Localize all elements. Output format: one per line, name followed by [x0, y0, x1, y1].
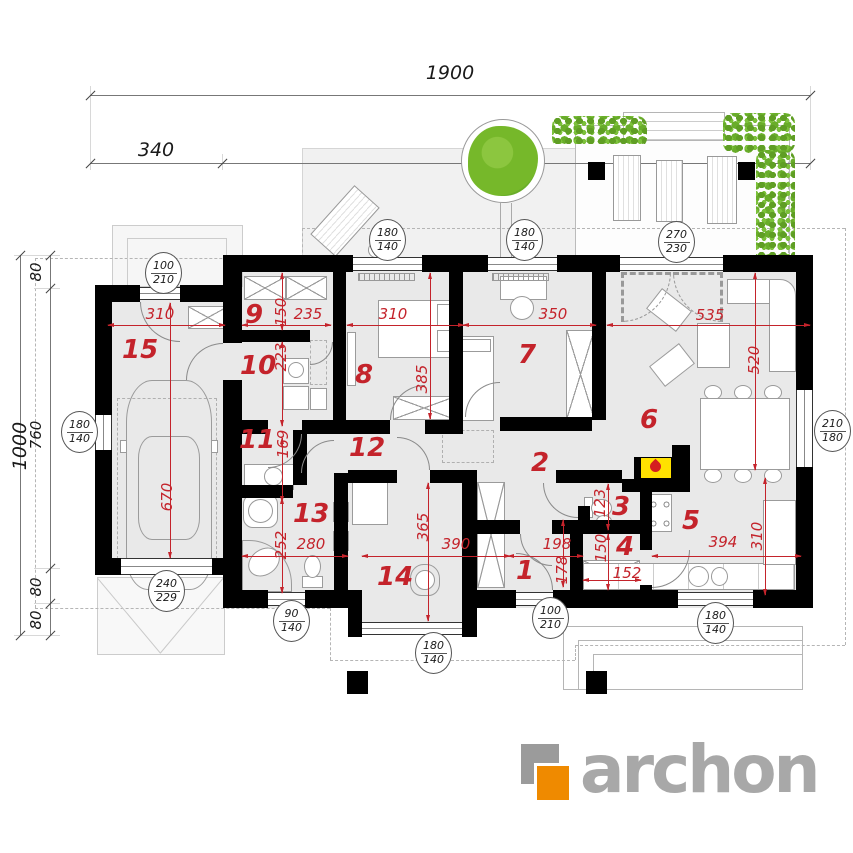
dim-garage-depth: 670 [158, 480, 176, 514]
sun-lounger [707, 156, 737, 224]
wall [753, 590, 813, 608]
dim-room8-width: 310 [376, 305, 410, 323]
wall [302, 420, 390, 434]
dim-room11-depth: 169 [274, 427, 292, 461]
dim-line [50, 255, 51, 635]
dim-room4-width: 152 [610, 564, 644, 582]
dim-h-seg1: 80 [27, 252, 45, 292]
pergola-post [738, 162, 755, 180]
dim-h-seg4: 80 [27, 600, 45, 640]
toilet [304, 555, 321, 578]
circ [288, 362, 304, 378]
radiator [492, 273, 549, 281]
room-number-13: 13 [293, 499, 329, 529]
porch-post [586, 671, 607, 694]
plan-element: 180 [705, 610, 726, 622]
wall [95, 450, 112, 575]
opening-label: 100210 [532, 597, 569, 639]
dv [170, 303, 171, 558]
dining-table [700, 398, 790, 470]
dim-line [90, 95, 810, 96]
dim-room6-depth: 520 [745, 343, 763, 377]
wall [425, 420, 463, 434]
room-number-2: 2 [531, 448, 549, 478]
room-number-12: 12 [349, 433, 385, 463]
wall [462, 520, 520, 534]
plan-element: 140 [423, 654, 444, 666]
dsh [330, 660, 575, 661]
dv [430, 273, 431, 419]
wall [348, 590, 362, 637]
dim-room6-width: 535 [693, 306, 727, 324]
room-number-10: 10 [240, 351, 276, 381]
room-number-15: 15 [122, 335, 158, 365]
dim-room8-depth: 385 [413, 362, 431, 396]
chair [704, 468, 722, 483]
opening-label: 180140 [61, 411, 98, 453]
wall [557, 255, 620, 272]
logo-orange-square [534, 763, 572, 803]
car-mirror [211, 440, 218, 453]
porch-post [347, 671, 368, 694]
desk-chair [510, 296, 534, 320]
ext [810, 86, 811, 170]
wall [333, 272, 346, 425]
plan-element: 90 [285, 608, 299, 620]
dim-room13-depth: 252 [272, 528, 290, 562]
window [362, 622, 462, 635]
cabinet [310, 388, 327, 410]
wall [230, 255, 353, 272]
dim-room9-width: 235 [291, 305, 325, 323]
wall [500, 417, 592, 431]
plan-element: 230 [666, 243, 687, 255]
steps [593, 654, 803, 690]
room-number-14: 14 [377, 562, 413, 592]
wall [553, 590, 678, 608]
wall [95, 285, 140, 302]
room-number-3: 3 [612, 492, 630, 522]
opening-label: 180140 [369, 219, 406, 261]
plan-element: 140 [281, 622, 302, 634]
dv [428, 483, 429, 621]
dsv [330, 608, 331, 660]
opening-label: 240229 [148, 570, 185, 612]
wall [95, 558, 121, 575]
plan-element: 240 [156, 578, 177, 590]
wall [552, 520, 583, 534]
wall [592, 272, 606, 420]
dsv [302, 228, 303, 258]
room-number-8: 8 [355, 360, 373, 390]
plan-element: 180 [69, 419, 90, 431]
kitchen-sink [688, 566, 709, 587]
room-number-1: 1 [516, 556, 534, 586]
bed [352, 477, 388, 525]
wall [556, 470, 622, 483]
wall [334, 473, 348, 590]
kitchen-sink [711, 567, 728, 586]
sink [264, 467, 283, 486]
plan-element: 270 [666, 229, 687, 241]
dryer [283, 386, 309, 410]
wall [477, 590, 516, 608]
chair [734, 468, 752, 483]
room-number-6: 6 [640, 405, 658, 435]
logo-wordmark: archon [580, 731, 818, 808]
opening-label: 270230 [658, 221, 695, 263]
car-mirror [120, 440, 127, 453]
dim-room9-depth: 150 [272, 295, 290, 329]
plan-element: 100 [153, 260, 174, 272]
plan-element: 140 [705, 624, 726, 636]
wall [223, 255, 242, 343]
wall [449, 272, 463, 420]
wall [672, 445, 690, 490]
opening-label: 180140 [415, 632, 452, 674]
dh [652, 556, 801, 557]
plan-element: 180 [514, 227, 535, 239]
dim-total-width: 1900 [420, 62, 480, 84]
abs [500, 203, 501, 257]
dim-room4-depth: 150 [592, 531, 610, 565]
dim-room14-depth: 365 [414, 510, 432, 544]
radiator [358, 273, 415, 281]
wall [305, 590, 348, 608]
vine-icon [552, 116, 647, 148]
dh [242, 556, 348, 557]
plan-element: 180 [377, 227, 398, 239]
plan-element: 100 [540, 605, 561, 617]
dim-room5-depth: 310 [748, 519, 766, 553]
opening-label: 210180 [814, 410, 851, 452]
dim-room1-depth: 178 [553, 553, 571, 587]
opening-label: 180140 [697, 602, 734, 644]
wall [640, 585, 652, 590]
vine-icon [756, 150, 795, 265]
room-number-11: 11 [239, 425, 275, 455]
dh [463, 325, 596, 326]
dim-room1-width: 198 [540, 535, 574, 553]
pergola-post [588, 162, 605, 180]
wardrobe [286, 276, 327, 300]
room-number-7: 7 [518, 340, 536, 370]
plan-element: 140 [377, 241, 398, 253]
plan-element: 140 [514, 241, 535, 253]
wall [348, 470, 397, 483]
tree-icon [468, 126, 538, 196]
opening-label: 90140 [273, 600, 310, 642]
dim-width-seg1: 340 [131, 139, 181, 161]
dim-h-seg2: 760 [27, 415, 45, 455]
plan-element: 210 [540, 619, 561, 631]
opening-label: 100210 [145, 252, 182, 294]
dh [362, 556, 510, 557]
wall [640, 534, 652, 550]
vine-icon [723, 113, 795, 153]
ext [90, 86, 91, 170]
plan-element: 229 [156, 592, 177, 604]
plan-element: 140 [69, 433, 90, 445]
opening-label: 180140 [506, 219, 543, 261]
wardrobe [477, 482, 505, 588]
plan-element: 210 [822, 418, 843, 430]
window [796, 390, 813, 467]
dim-room14-width: 390 [439, 535, 473, 553]
sofa [727, 279, 773, 304]
wall [578, 506, 590, 520]
sun-lounger [656, 160, 683, 222]
dim-room3-depth: 123 [591, 486, 609, 520]
dim-room7-width: 350 [536, 305, 570, 323]
coffee-table [697, 323, 730, 368]
wall [462, 590, 477, 637]
dh [108, 325, 225, 326]
wall [95, 285, 112, 415]
plan-element: 180 [822, 432, 843, 444]
dim-line [90, 163, 810, 164]
wall [796, 467, 813, 608]
dim-room13-width: 280 [294, 535, 328, 553]
room-number-5: 5 [682, 506, 700, 536]
room-number-4: 4 [616, 532, 634, 562]
dashbox [442, 430, 494, 463]
room-number-9: 9 [245, 300, 263, 330]
plan-element: 180 [423, 640, 444, 652]
dim-garage-width: 310 [143, 305, 177, 323]
wall [422, 255, 488, 272]
floor-plan: 1900 340 1560 1000 80 760 80 80 [0, 0, 853, 853]
dh [347, 325, 464, 326]
wardrobe [566, 330, 595, 419]
dh [607, 325, 810, 326]
circ [248, 499, 273, 523]
circ [415, 570, 435, 590]
sun-lounger [613, 155, 641, 221]
dim-room5-width: 394 [706, 533, 740, 551]
plan-element: 210 [153, 274, 174, 286]
